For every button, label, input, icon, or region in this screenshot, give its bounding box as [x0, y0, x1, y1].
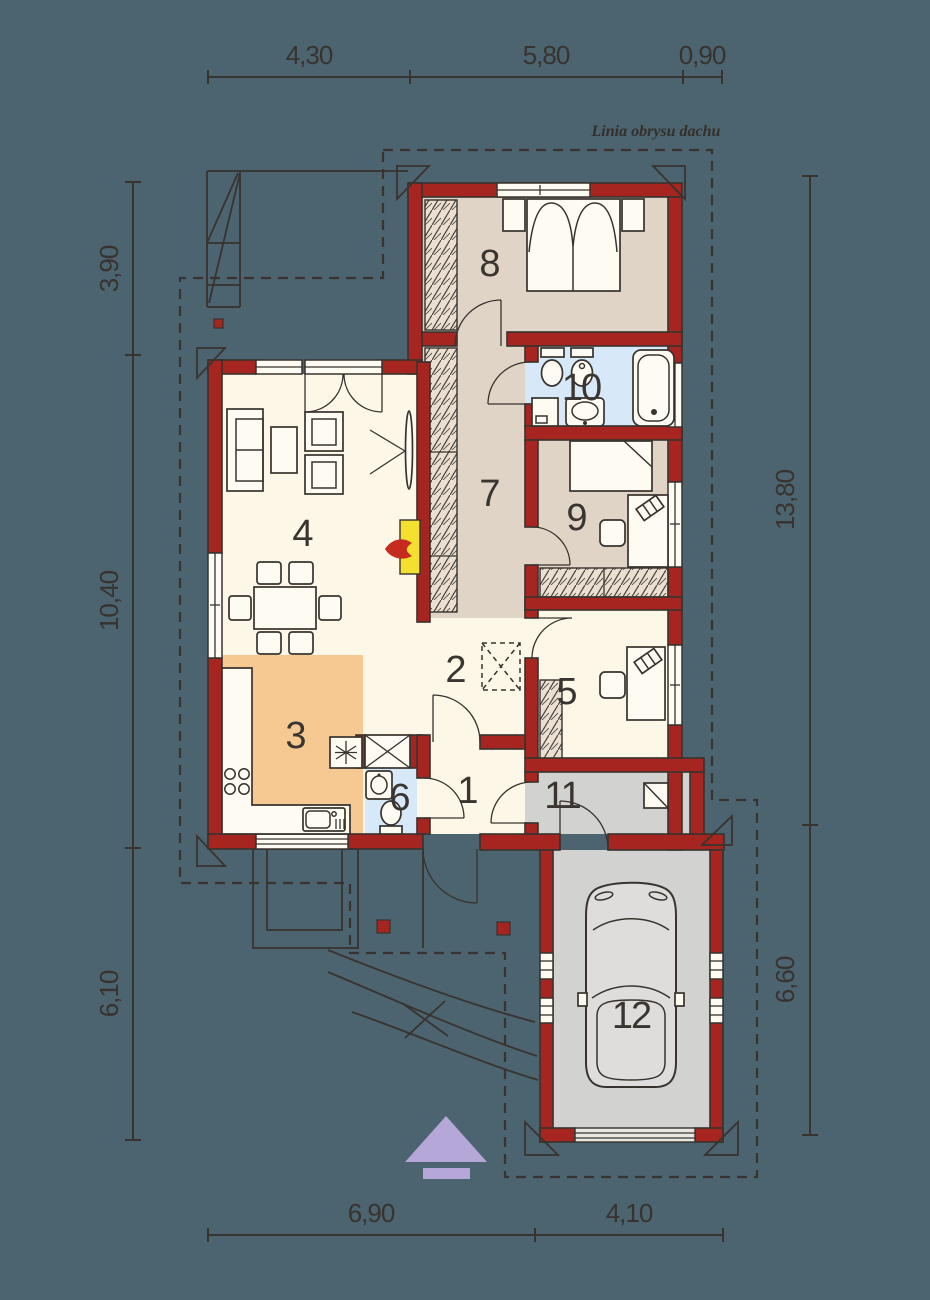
dining-table: [254, 587, 316, 629]
room-label-10: 10: [562, 367, 601, 409]
bed-9: [570, 441, 652, 491]
window-garage-right-2: [710, 998, 723, 1023]
window-bedroom8-top: [497, 183, 590, 197]
dim-bottom-2: 4,10: [606, 1198, 653, 1228]
room-label-7: 7: [479, 473, 499, 515]
room-label-9: 9: [566, 497, 586, 539]
coffee-table: [271, 427, 297, 473]
window-garage-left-1: [540, 953, 553, 979]
dim-left-1: 3,90: [94, 245, 124, 292]
dim-top-1: 4,30: [286, 40, 333, 70]
washbasin-wc: [366, 771, 392, 799]
window-garage-right-1: [710, 953, 723, 979]
room-label-6: 6: [389, 777, 409, 819]
room-label-4: 4: [292, 513, 313, 555]
floor-plan-svg: Linia obrysu dachu: [0, 0, 930, 1300]
room-label-2: 2: [445, 649, 465, 691]
window-room5-right: [668, 645, 682, 725]
porch-column-right: [497, 922, 510, 935]
dim-top-2: 5,80: [523, 40, 570, 70]
dim-left-2: 10,40: [94, 570, 124, 631]
room-label-3: 3: [285, 715, 305, 757]
dim-left-3: 6,10: [94, 970, 124, 1017]
chair-9: [600, 520, 625, 546]
car: [578, 883, 684, 1087]
room-label-1: 1: [457, 770, 477, 812]
window-kitchen-bottom: [256, 834, 348, 849]
furniture-utility11: [644, 783, 668, 808]
nightstand-left: [503, 199, 525, 231]
car-mirror-left: [578, 993, 587, 1006]
armchair-1: [305, 412, 343, 451]
window-bedroom9-right: [668, 482, 682, 567]
car-mirror-right: [675, 993, 684, 1006]
porch-column-left: [377, 920, 390, 933]
room-label-12: 12: [612, 995, 651, 1037]
room-label-11: 11: [544, 775, 580, 817]
vent-shaft: [365, 735, 410, 768]
armchair-2: [305, 455, 343, 494]
chair-5: [600, 672, 625, 698]
dim-bottom-1: 6,90: [348, 1198, 395, 1228]
bathtub: [633, 350, 674, 426]
room-label-5: 5: [556, 671, 576, 713]
dim-right-1: 13,80: [770, 469, 800, 530]
dim-right-2: 6,60: [770, 956, 800, 1003]
nightstand-right: [622, 199, 644, 231]
toilet: [541, 348, 564, 386]
washing-machine: [532, 398, 558, 426]
window-garage-left-2: [540, 998, 553, 1023]
fridge-icon: [330, 737, 362, 768]
roof-outline-label: Linia obrysu dachu: [591, 123, 721, 140]
floor-plan-page: Linia obrysu dachu: [0, 0, 930, 1300]
window-living-left: [208, 553, 222, 658]
wardrobe-bedroom8: [425, 200, 457, 330]
dim-top-3: 0,90: [679, 40, 726, 70]
sofa: [227, 409, 263, 491]
room-label-8: 8: [479, 243, 499, 285]
garage-door: [575, 1128, 695, 1142]
pergola-column: [214, 319, 223, 328]
window-living-top: [256, 360, 302, 374]
sink: [303, 808, 345, 831]
